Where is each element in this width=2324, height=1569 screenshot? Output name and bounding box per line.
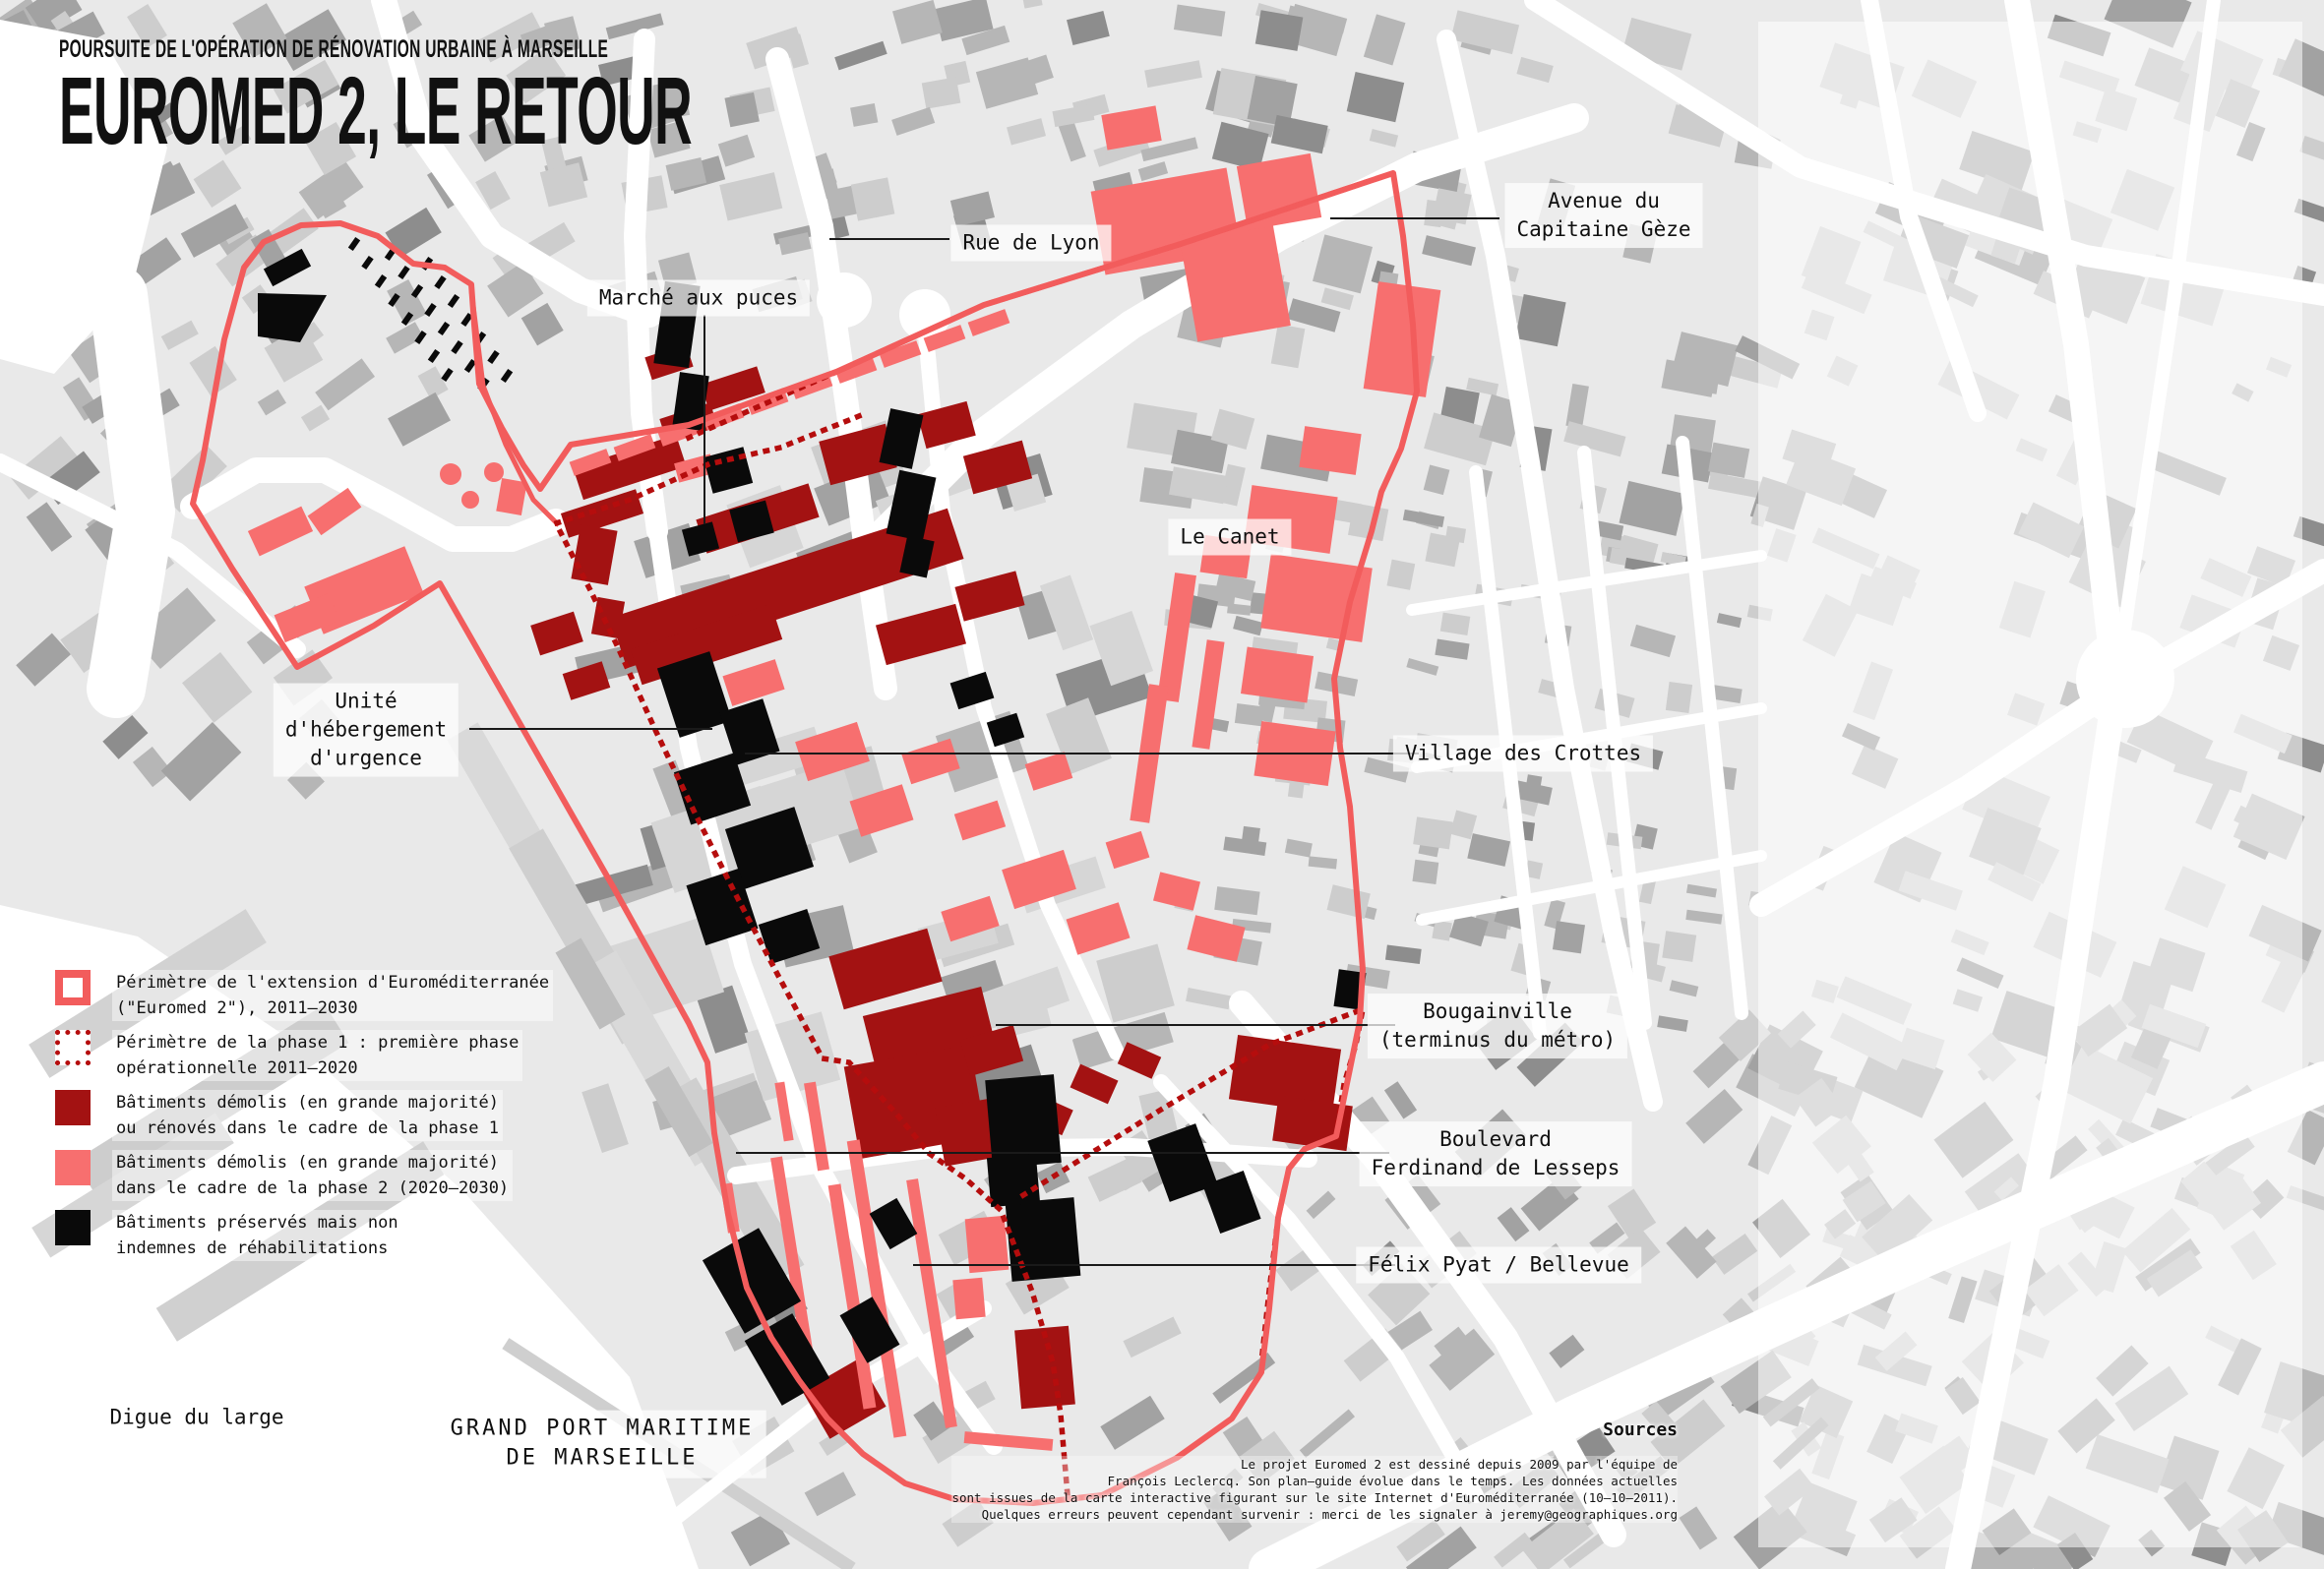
legend: Périmètre de l'extension d'Euroméditerra… bbox=[55, 970, 553, 1270]
legend-label: Bâtiments démolis (en grande majorité) d… bbox=[112, 1150, 513, 1201]
map-label-village-des-crottes: Village des Crottes bbox=[1393, 736, 1653, 772]
legend-label: Bâtiments démolis (en grande majorité) o… bbox=[112, 1090, 503, 1141]
map-label-rue-de-lyon: Rue de Lyon bbox=[950, 225, 1111, 262]
map-page: POURSUITE DE L'OPÉRATION DE RÉNOVATION U… bbox=[0, 0, 2324, 1569]
map-label-digue-du-large: Digue du large bbox=[97, 1400, 295, 1436]
legend-item-perimeter-euromed2: Périmètre de l'extension d'Euroméditerra… bbox=[55, 970, 553, 1021]
map-label-le-canet: Le Canet bbox=[1168, 519, 1291, 556]
map-label-lesseps: Boulevard Ferdinand de Lesseps bbox=[1360, 1121, 1632, 1186]
map-label-grand-port: GRAND PORT MARITIME DE MARSEILLE bbox=[439, 1411, 766, 1478]
sources-heading: Sources bbox=[951, 1419, 1678, 1440]
map-label-marche-aux-puces: Marché aux puces bbox=[587, 280, 810, 317]
legend-swatch-demolished-phase1 bbox=[55, 1090, 91, 1125]
legend-item-demolished-phase2: Bâtiments démolis (en grande majorité) d… bbox=[55, 1150, 553, 1201]
fade-overlay bbox=[1758, 22, 2302, 1547]
map-label-capitaine-geze: Avenue du Capitaine Gèze bbox=[1504, 183, 1702, 248]
legend-item-preserved: Bâtiments préservés mais non indemnes de… bbox=[55, 1210, 553, 1261]
legend-item-perimeter-phase1: Périmètre de la phase 1 : première phase… bbox=[55, 1030, 553, 1081]
legend-label: Périmètre de l'extension d'Euroméditerra… bbox=[112, 970, 553, 1021]
sources-block: Sources Le projet Euromed 2 est dessiné … bbox=[951, 1419, 1678, 1523]
map-label-felix-pyat: Félix Pyat / Bellevue bbox=[1356, 1247, 1641, 1284]
legend-swatch-perimeter-phase1 bbox=[55, 1030, 91, 1065]
map-canvas bbox=[0, 0, 2324, 1569]
legend-label: Périmètre de la phase 1 : première phase… bbox=[112, 1030, 522, 1081]
page-title: EUROMED 2, LE RETOUR bbox=[59, 66, 692, 156]
map-label-bougainville: Bougainville (terminus du métro) bbox=[1368, 994, 1627, 1058]
title-block: POURSUITE DE L'OPÉRATION DE RÉNOVATION U… bbox=[59, 35, 1209, 156]
legend-label: Bâtiments préservés mais non indemnes de… bbox=[112, 1210, 402, 1261]
legend-swatch-demolished-phase2 bbox=[55, 1150, 91, 1185]
sources-body: Le projet Euromed 2 est dessiné depuis 2… bbox=[951, 1456, 1678, 1523]
legend-item-demolished-phase1: Bâtiments démolis (en grande majorité) o… bbox=[55, 1090, 553, 1141]
map-label-unite-hebergement: Unité d'hébergement d'urgence bbox=[274, 684, 459, 777]
legend-swatch-perimeter-euromed2 bbox=[55, 970, 91, 1005]
legend-swatch-preserved bbox=[55, 1210, 91, 1245]
